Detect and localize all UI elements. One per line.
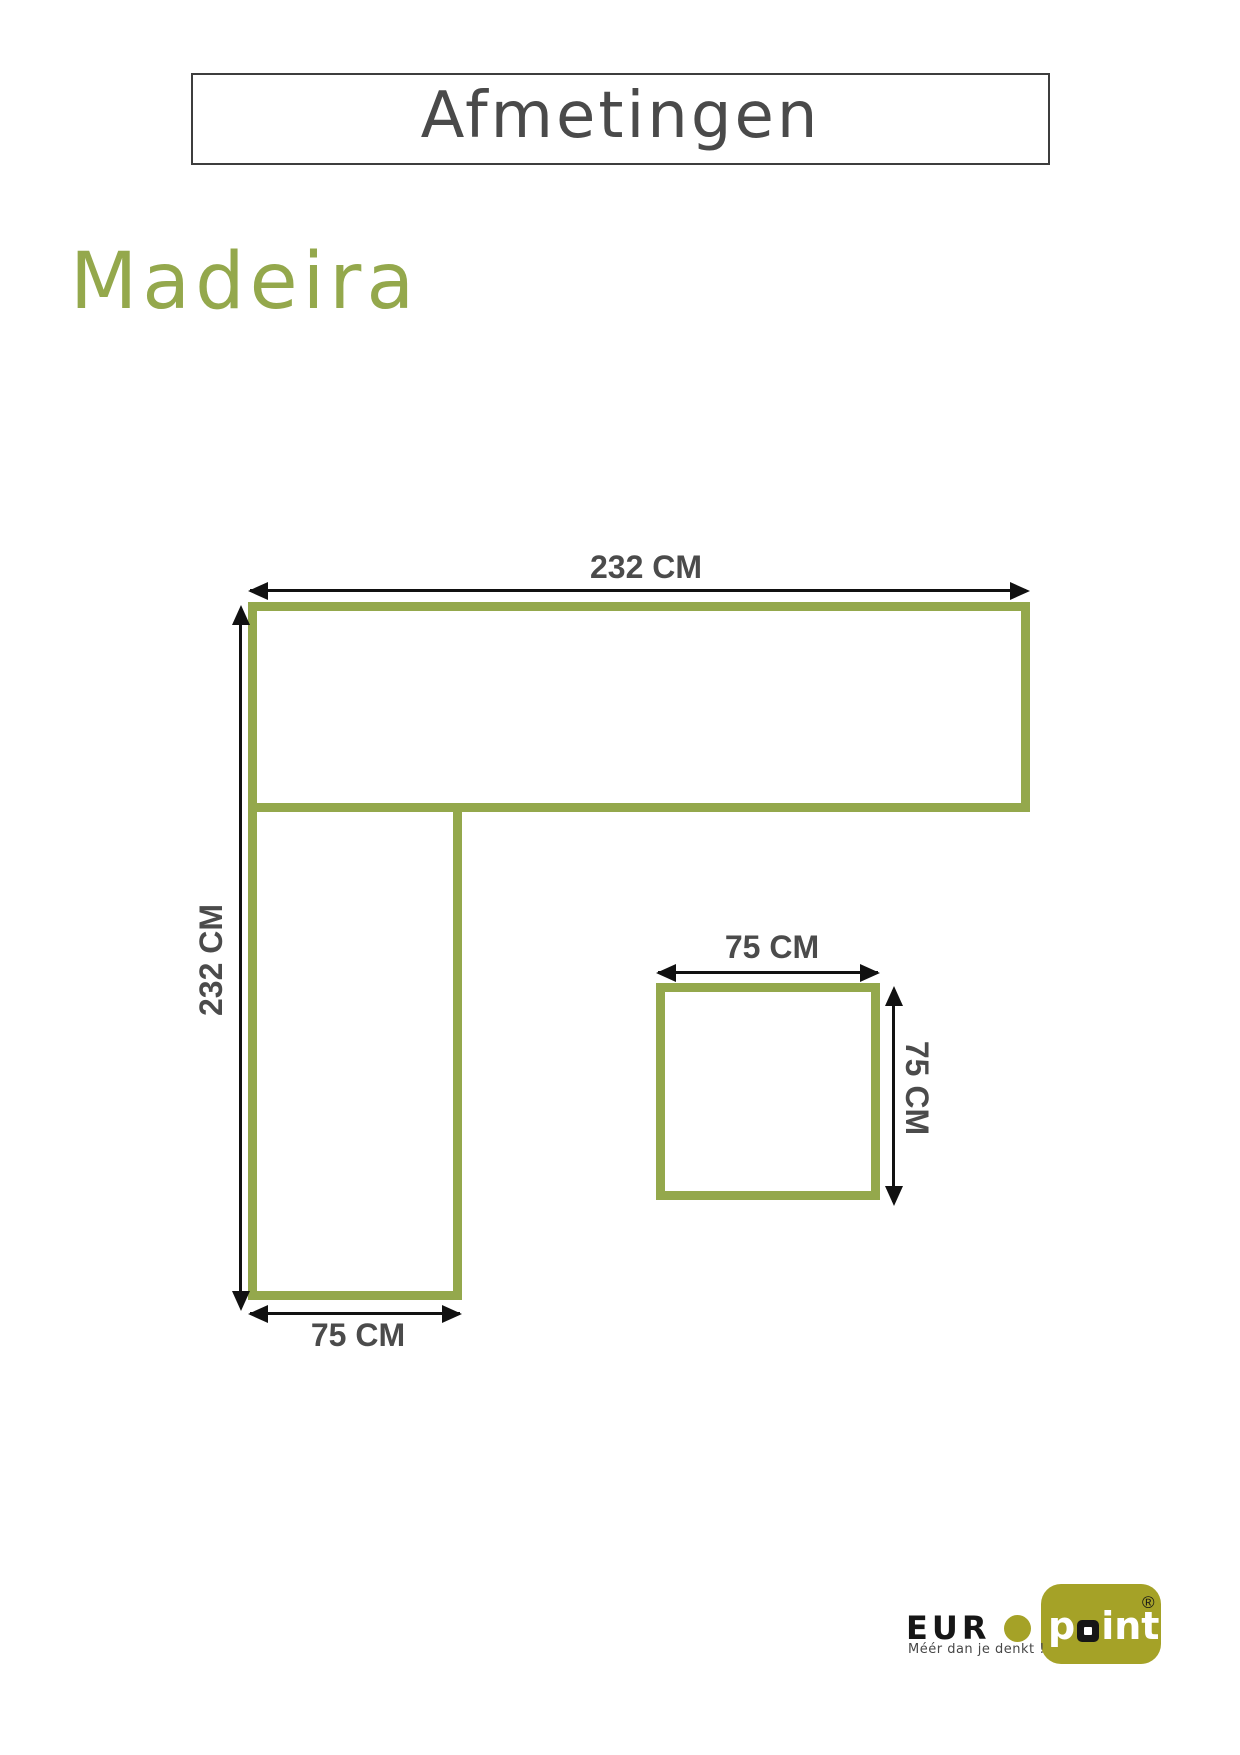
logo-o-disc-icon <box>1004 1615 1031 1642</box>
arrowhead-left-icon <box>656 964 676 982</box>
europoint-logo: EUR p int ® Méér dan je denkt ! <box>905 1582 1167 1677</box>
table-outline <box>656 983 880 1200</box>
page-title: Afmetingen <box>421 84 821 154</box>
logo-letter-p: p <box>1048 1607 1075 1645</box>
dimension-line <box>892 990 895 1202</box>
arrowhead-left-icon <box>248 1305 268 1323</box>
arrowhead-right-icon <box>1010 582 1030 600</box>
registered-trademark-icon: ® <box>1142 1594 1155 1611</box>
dimension-label-sofa-width: 232 CM <box>590 551 702 583</box>
arrowhead-right-icon <box>442 1305 462 1323</box>
arrowhead-up-icon <box>885 986 903 1006</box>
logo-square-o-icon <box>1077 1620 1099 1642</box>
sofa-top-section-outline <box>248 602 1030 812</box>
arrowhead-down-icon <box>885 1186 903 1206</box>
arrowhead-right-icon <box>860 964 880 982</box>
dimension-label-table-width: 75 CM <box>725 931 819 963</box>
dimension-line <box>250 1312 460 1315</box>
page-title-box: Afmetingen <box>191 73 1050 165</box>
dimension-label-chaise-width: 75 CM <box>311 1319 405 1351</box>
logo-letters-int: int <box>1101 1607 1159 1645</box>
dimension-line <box>658 971 878 974</box>
logo-text-eur: EUR <box>906 1612 990 1644</box>
dimension-label-table-height: 75 CM <box>901 1041 933 1135</box>
product-name: Madeira <box>70 243 419 321</box>
dimension-label-sofa-height: 232 CM <box>195 904 227 1016</box>
arrowhead-up-icon <box>232 605 250 625</box>
dimension-line <box>250 589 1026 592</box>
arrowhead-left-icon <box>248 582 268 600</box>
dimension-line <box>239 612 242 1304</box>
logo-tagline: Méér dan je denkt ! <box>908 1643 1045 1656</box>
logo-square-o-hole <box>1084 1627 1092 1635</box>
sofa-chaise-section-outline <box>248 803 462 1300</box>
